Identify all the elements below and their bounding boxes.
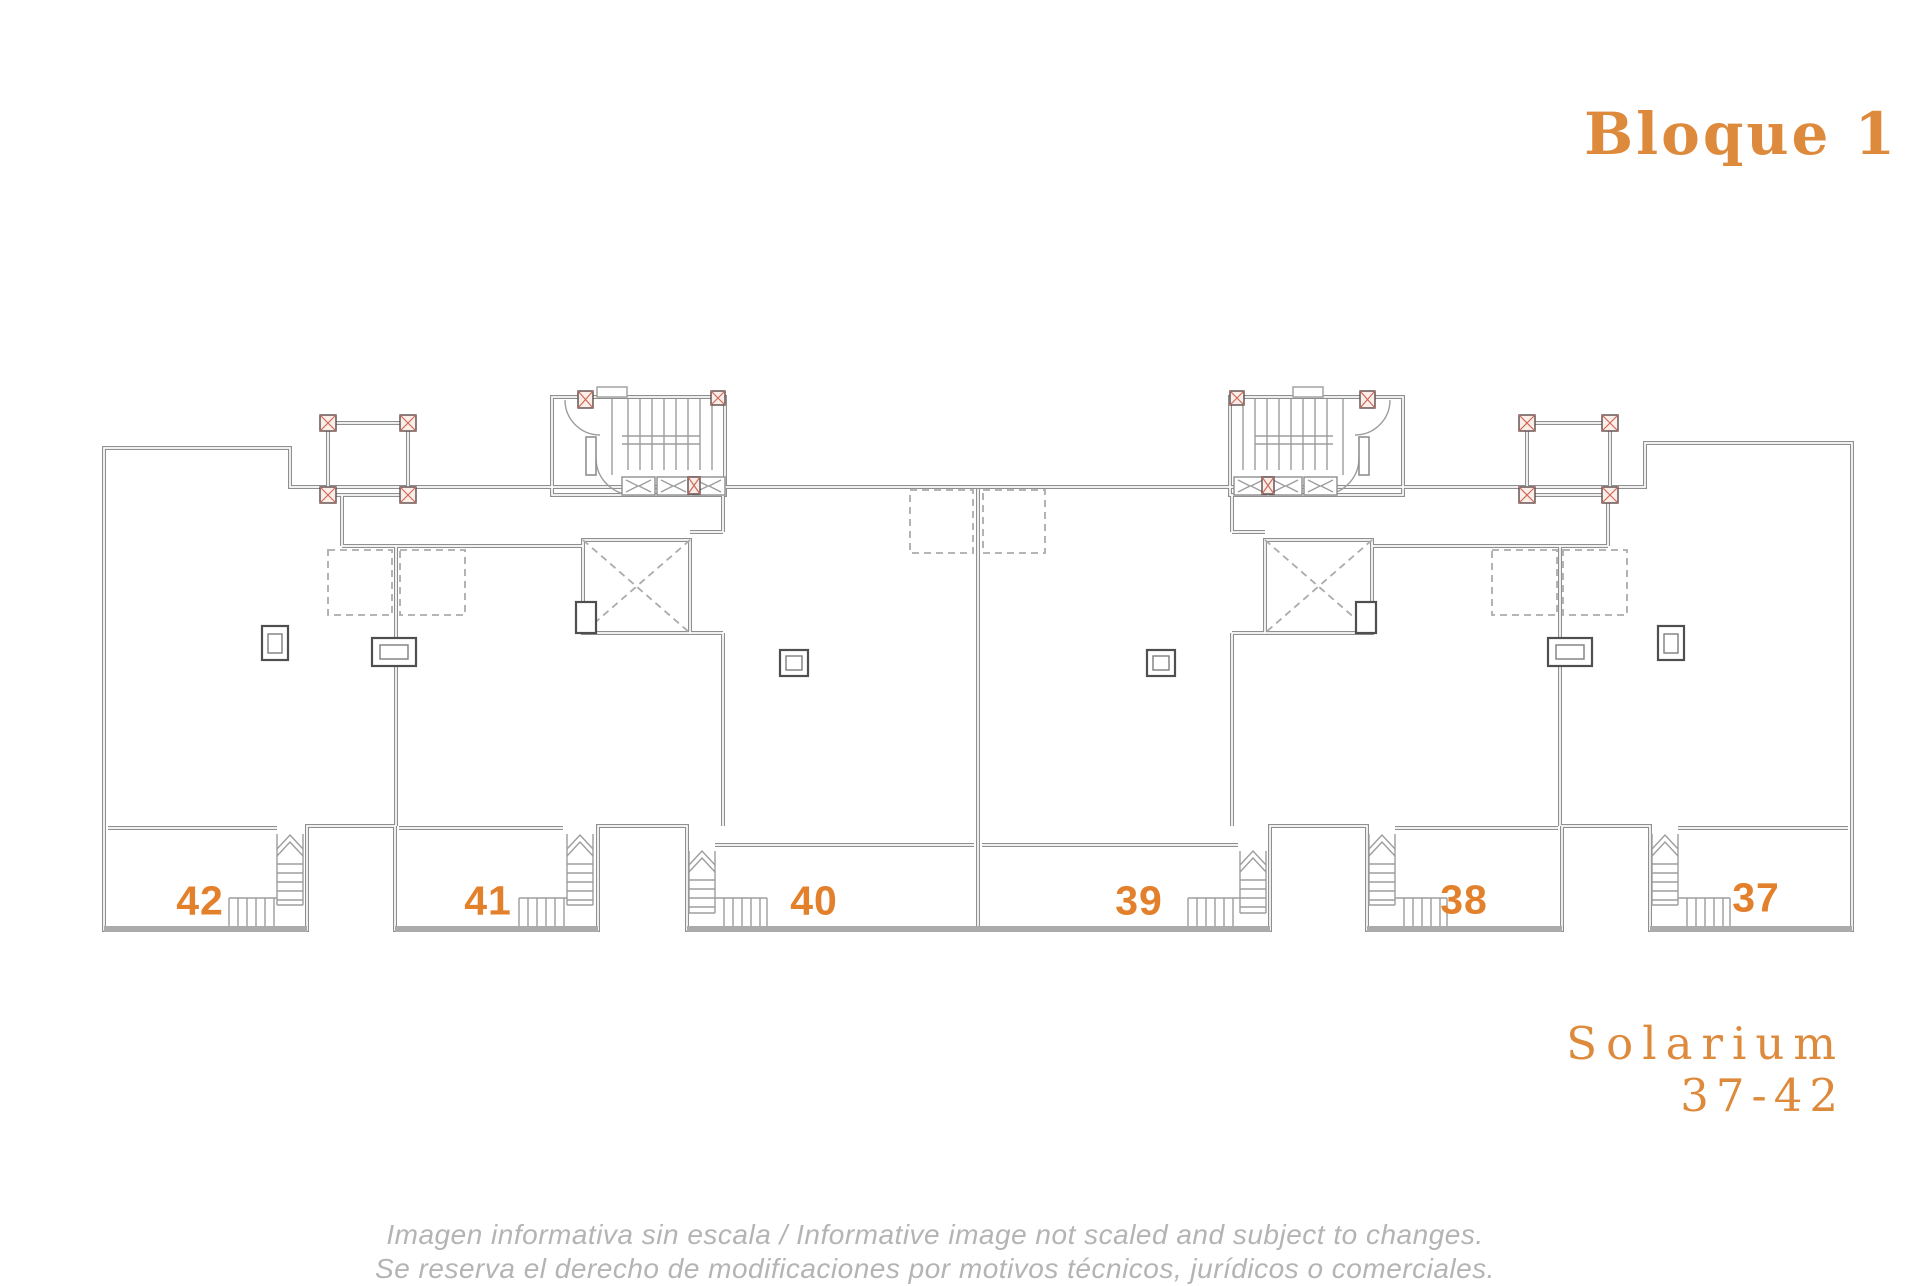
unit-label-39: 39 — [1115, 878, 1163, 925]
right-pergola-posts — [1519, 415, 1618, 503]
elevator-vents-right — [1234, 477, 1337, 495]
solarium-line1: Solarium — [1345, 1018, 1845, 1070]
disclaimer-line2: Se reserva el derecho de modificaciones … — [0, 1252, 1870, 1286]
unit-label-42: 42 — [176, 878, 224, 925]
page: { "title": "Bloque 1", "units": [ {"numb… — [0, 0, 1920, 1280]
unit-label-41: 41 — [464, 878, 512, 925]
unit-label-37: 37 — [1732, 875, 1780, 922]
solarium-label: Solarium 37-42 — [1345, 1018, 1845, 1122]
solarium-line2: 37-42 — [1345, 1070, 1845, 1122]
disclaimer-line1: Imagen informativa sin escala / Informat… — [0, 1218, 1870, 1252]
block-title: Bloque 1 — [1298, 100, 1898, 168]
disclaimer: Imagen informativa sin escala / Informat… — [0, 1218, 1870, 1286]
unit-label-38: 38 — [1440, 877, 1488, 924]
unit-label-40: 40 — [790, 878, 838, 925]
elevator-vents-left — [622, 477, 725, 495]
left-pergola-posts — [320, 415, 416, 503]
roof-drains — [262, 602, 1684, 676]
